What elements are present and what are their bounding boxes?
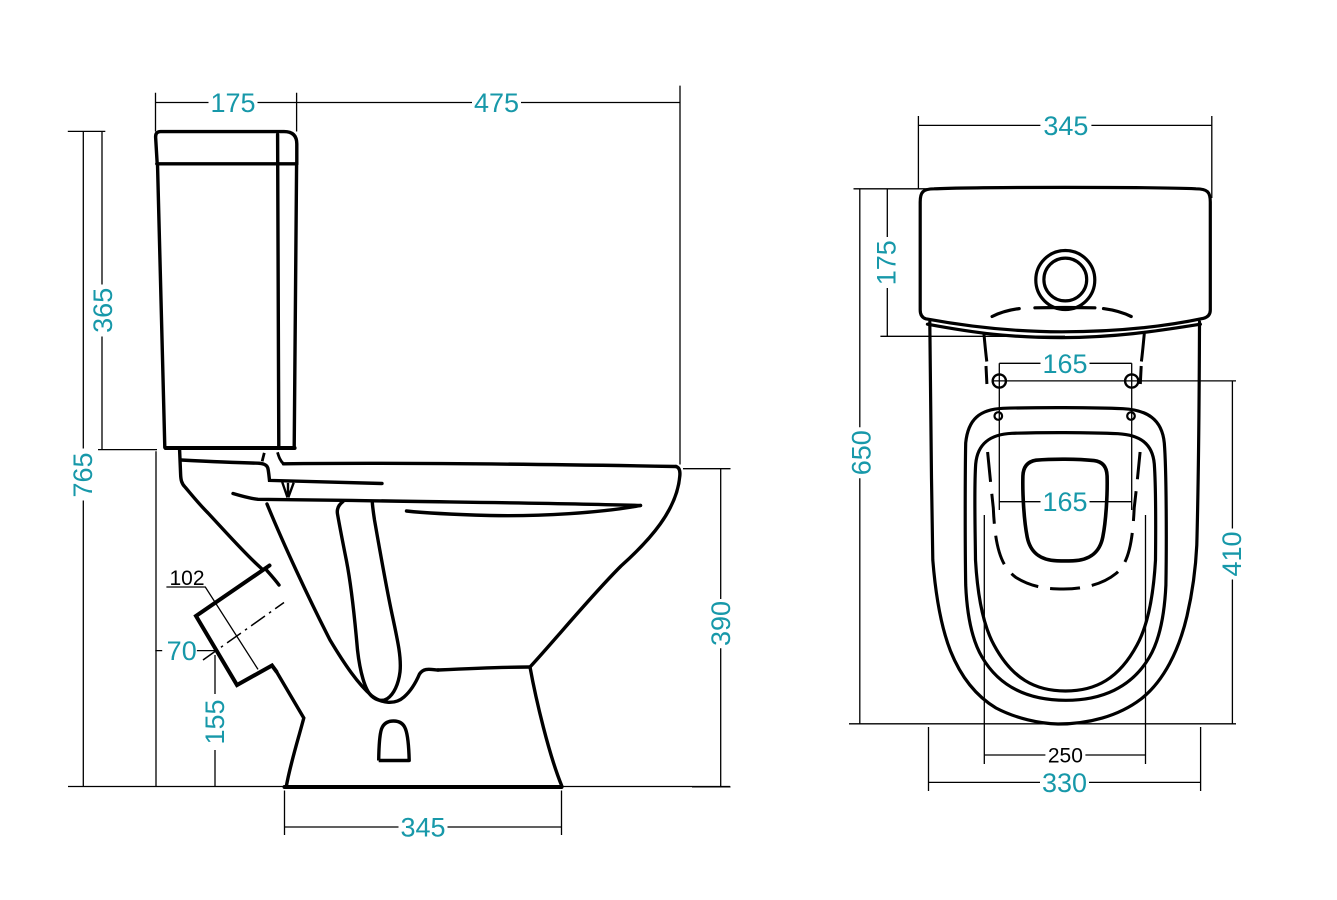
- svg-text:475: 475: [474, 88, 519, 118]
- svg-text:175: 175: [210, 88, 255, 118]
- svg-text:155: 155: [200, 699, 230, 744]
- svg-text:365: 365: [88, 288, 118, 333]
- svg-text:330: 330: [1042, 768, 1087, 798]
- svg-text:345: 345: [1043, 111, 1088, 141]
- svg-text:70: 70: [167, 636, 197, 666]
- svg-text:650: 650: [847, 430, 877, 475]
- svg-text:165: 165: [1042, 487, 1087, 517]
- svg-text:165: 165: [1042, 349, 1087, 379]
- svg-text:175: 175: [872, 240, 902, 285]
- svg-text:250: 250: [1048, 745, 1083, 768]
- svg-text:410: 410: [1217, 531, 1247, 576]
- svg-text:765: 765: [68, 452, 98, 497]
- svg-text:345: 345: [400, 813, 445, 843]
- svg-text:390: 390: [706, 601, 736, 646]
